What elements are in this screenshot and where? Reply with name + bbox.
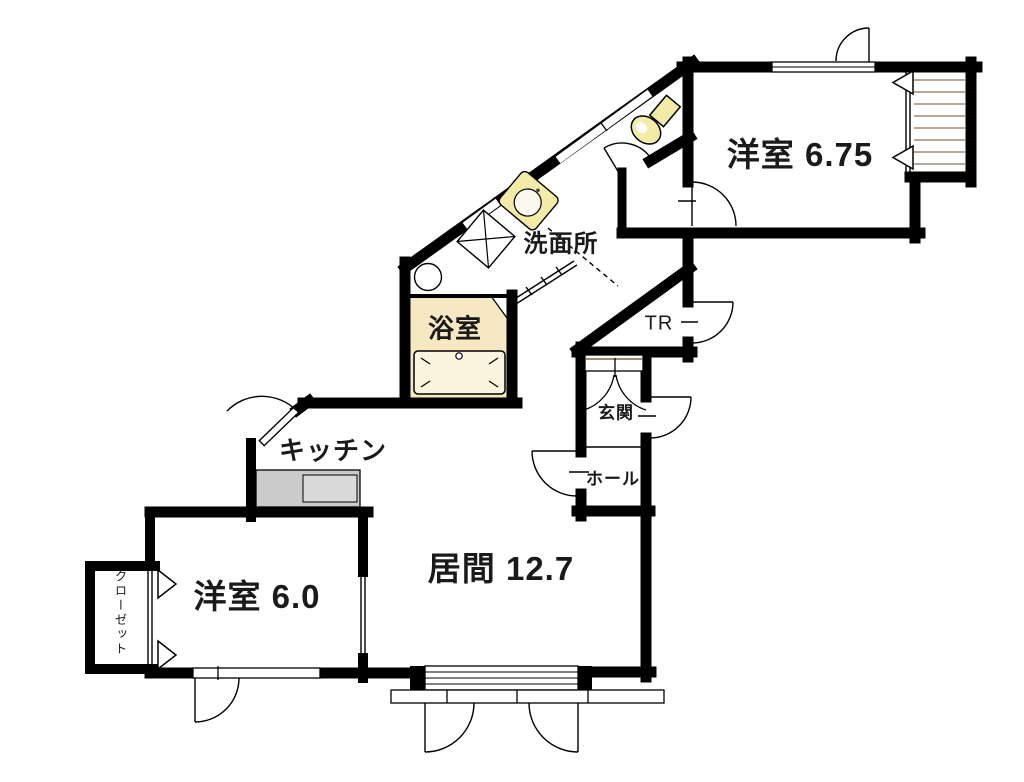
kitchen-counter — [256, 470, 360, 507]
door-front-entrance — [638, 397, 691, 438]
door-western675-top — [836, 28, 869, 62]
balcony-opening — [391, 666, 664, 752]
divider-sliding-track — [361, 572, 365, 658]
closet-fold-arrows — [158, 570, 176, 669]
folding-door-arrow-icon — [158, 570, 176, 598]
floor-plan-drawing — [0, 0, 1024, 782]
closet-door-track — [148, 570, 152, 665]
label-western-675: 洋室 6.75 — [727, 128, 873, 176]
label-bathroom: 浴室 — [428, 309, 482, 346]
label-trunk-room: TR — [645, 313, 674, 336]
door-western675-left — [678, 182, 736, 226]
fixtures — [415, 95, 681, 290]
folding-door-arrow-icon — [158, 641, 176, 669]
label-entrance: 玄関 — [598, 399, 634, 424]
floor-plan: 洋室 6.75 洗面所 浴室 TR 玄関 ホール キッチン 居間 12.7 洋室… — [0, 0, 1024, 782]
closet-front — [148, 570, 176, 669]
label-kitchen: キッチン — [279, 431, 387, 468]
balcony-doors — [425, 703, 578, 752]
water-heater — [415, 264, 442, 291]
folding-door-arrow-icon — [893, 71, 913, 94]
counter-sink — [303, 475, 357, 502]
label-closet: クローゼット — [111, 570, 130, 657]
wall-kitchen-diagonal — [297, 401, 309, 410]
label-washroom: 洗面所 — [524, 224, 599, 259]
balcony-sill — [391, 690, 664, 703]
wall-tr-diagonal — [577, 268, 690, 350]
stairs-area — [893, 71, 966, 172]
shoe-cabinet — [585, 355, 643, 371]
label-living: 居間 12.7 — [428, 542, 574, 590]
window-western60-bottom — [193, 668, 320, 678]
door-western60-bottom — [195, 678, 239, 722]
label-western-60: 洋室 6.0 — [193, 570, 320, 618]
door-bathroom-sliding — [513, 261, 577, 304]
label-hall: ホール — [586, 465, 640, 490]
stair-treads — [914, 80, 966, 164]
wash-basin — [497, 169, 560, 231]
folding-door-arrow-icon — [893, 146, 913, 169]
bathtub-drain — [456, 353, 462, 359]
